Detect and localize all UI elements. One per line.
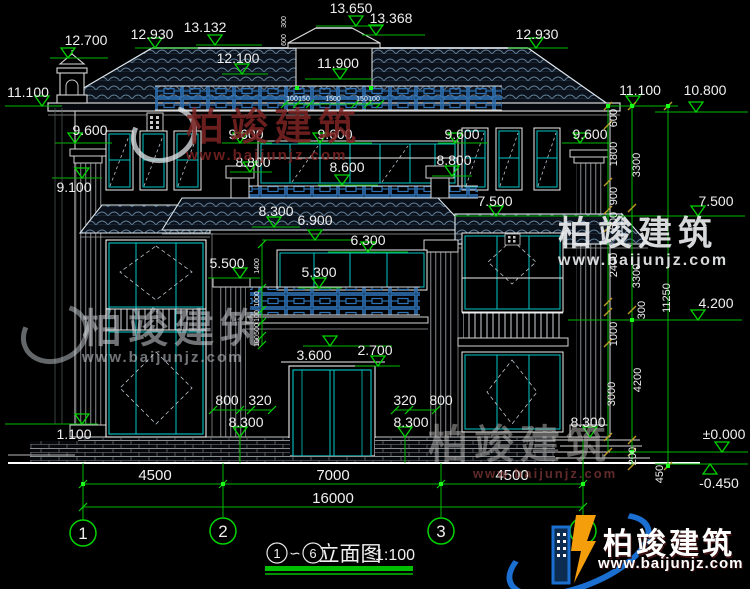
title-axis-to: 6 bbox=[309, 546, 316, 561]
level-label: 9.600 bbox=[572, 126, 607, 142]
level-label: 9.600 bbox=[317, 126, 352, 142]
level-label: 1.100 bbox=[56, 426, 91, 442]
dim-label: 4200 bbox=[632, 368, 644, 392]
level-label: 6.300 bbox=[350, 232, 385, 248]
dim-label: 1400 bbox=[254, 258, 261, 274]
title-underline bbox=[265, 566, 413, 571]
dim-label: 4500 bbox=[138, 467, 171, 484]
logo-url-text: www.baijunjz.com bbox=[598, 555, 743, 572]
extension-lines bbox=[55, 108, 62, 424]
level-label: 12.930 bbox=[516, 26, 559, 42]
dim-label: 1000 bbox=[254, 291, 261, 307]
drawing-title: 1 ∽ 6 立面图 1:100 bbox=[265, 543, 415, 574]
entrance-door bbox=[281, 362, 385, 456]
title-scale: 1:100 bbox=[375, 547, 415, 564]
level-label: 5.500 bbox=[209, 255, 244, 271]
logo-building-icon bbox=[550, 513, 602, 587]
level-label: 8.300 bbox=[570, 414, 605, 430]
level-label: 13.132 bbox=[184, 19, 227, 35]
dim-label: 100 bbox=[368, 96, 380, 103]
dim-label: 500 bbox=[254, 323, 261, 335]
level-label: 8.600 bbox=[329, 159, 364, 175]
level-label: 9.600 bbox=[72, 122, 107, 138]
title-separator: ∽ bbox=[289, 545, 301, 561]
level-label: 2.700 bbox=[357, 342, 392, 358]
dim-label: 450 bbox=[654, 465, 666, 483]
dim-label: 900 bbox=[608, 187, 620, 205]
dim-label: 150 bbox=[356, 96, 368, 103]
level-label: 9.100 bbox=[56, 179, 91, 195]
dim-label: 320 bbox=[393, 392, 417, 408]
dim-label: 2400 bbox=[608, 253, 620, 277]
level-label: 5.300 bbox=[301, 264, 336, 280]
level-label: 13.368 bbox=[370, 10, 413, 26]
dim-label: 300 bbox=[636, 301, 648, 319]
dim-label: 200 bbox=[627, 447, 639, 465]
left-windows-3f bbox=[106, 131, 201, 190]
dim-label: 600 bbox=[608, 212, 620, 230]
axis-label: 1 bbox=[78, 524, 87, 543]
level-label: 8.300 bbox=[258, 203, 293, 219]
level-label: 12.100 bbox=[217, 50, 260, 66]
level-label: 12.700 bbox=[65, 32, 108, 48]
level-label: 10.800 bbox=[684, 82, 727, 98]
dim-label: 320 bbox=[248, 392, 272, 408]
dim-label: 1500 bbox=[325, 96, 341, 103]
dim-label: 150 bbox=[298, 96, 310, 103]
right-window-1f bbox=[462, 352, 563, 432]
dim-label: 100 bbox=[286, 96, 298, 103]
dim-label: 3000 bbox=[606, 382, 618, 406]
level-label: 9.600 bbox=[444, 126, 479, 142]
level-label: 11.100 bbox=[619, 82, 661, 98]
right-window-2f bbox=[458, 233, 568, 346]
level-label: 6.900 bbox=[297, 212, 332, 228]
level-label: 8.800 bbox=[436, 152, 471, 168]
level-label: 11.900 bbox=[317, 55, 359, 71]
dim-label: 16000 bbox=[312, 490, 354, 507]
level-label: 11.100 bbox=[7, 84, 49, 100]
dim-label: 600 bbox=[281, 34, 288, 46]
center-window-2f bbox=[277, 250, 427, 290]
dim-label: 3300 bbox=[631, 264, 643, 288]
level-label: 4.200 bbox=[698, 295, 733, 311]
level-label: ±0.000 bbox=[703, 426, 746, 442]
level-label: 3.600 bbox=[296, 347, 331, 363]
left-curtain-window bbox=[106, 240, 206, 437]
dim-label: 11250 bbox=[661, 283, 673, 313]
right-pilaster bbox=[570, 150, 608, 437]
dim-label: 100 bbox=[254, 310, 261, 322]
level-label: 8.300 bbox=[228, 414, 263, 430]
dim-label: 4500 bbox=[495, 467, 528, 484]
level-label: 7.500 bbox=[477, 193, 512, 209]
cad-elevation-drawing: 12.700 12.930 13.132 13.650 13.368 12.93… bbox=[0, 0, 750, 589]
dim-label: 1800 bbox=[608, 142, 620, 166]
dim-label: 800 bbox=[429, 392, 453, 408]
level-label: 13.650 bbox=[330, 0, 373, 16]
company-logo: 柏竣建筑 www.baijunjz.com bbox=[440, 505, 750, 589]
dim-label: 600 bbox=[608, 109, 620, 127]
level-label: 12.930 bbox=[131, 26, 174, 42]
dim-label: 3300 bbox=[631, 153, 643, 177]
level-label: 9.600 bbox=[228, 126, 263, 142]
title-axis-from: 1 bbox=[273, 546, 280, 561]
center-balcony bbox=[246, 287, 428, 329]
chimney-block bbox=[147, 113, 163, 131]
drawing-canvas: 12.700 12.930 13.132 13.650 13.368 12.93… bbox=[0, 0, 750, 589]
dim-label: 100 bbox=[254, 335, 261, 347]
level-label: -0.450 bbox=[699, 475, 739, 491]
dim-label: 7000 bbox=[316, 467, 349, 484]
dim-label: 300 bbox=[281, 16, 288, 28]
vdim-labels: 600 1800 900 600 2400 300 1000 3000 3300… bbox=[606, 109, 673, 483]
level-label: 8.800 bbox=[235, 154, 270, 170]
level-label: 7.500 bbox=[698, 193, 733, 209]
level-label: 8.300 bbox=[393, 414, 428, 430]
title-text: 立面图 bbox=[319, 543, 382, 566]
dim-label: 1000 bbox=[608, 322, 620, 346]
axis-label: 2 bbox=[218, 522, 227, 541]
dim-label: 800 bbox=[215, 392, 239, 408]
